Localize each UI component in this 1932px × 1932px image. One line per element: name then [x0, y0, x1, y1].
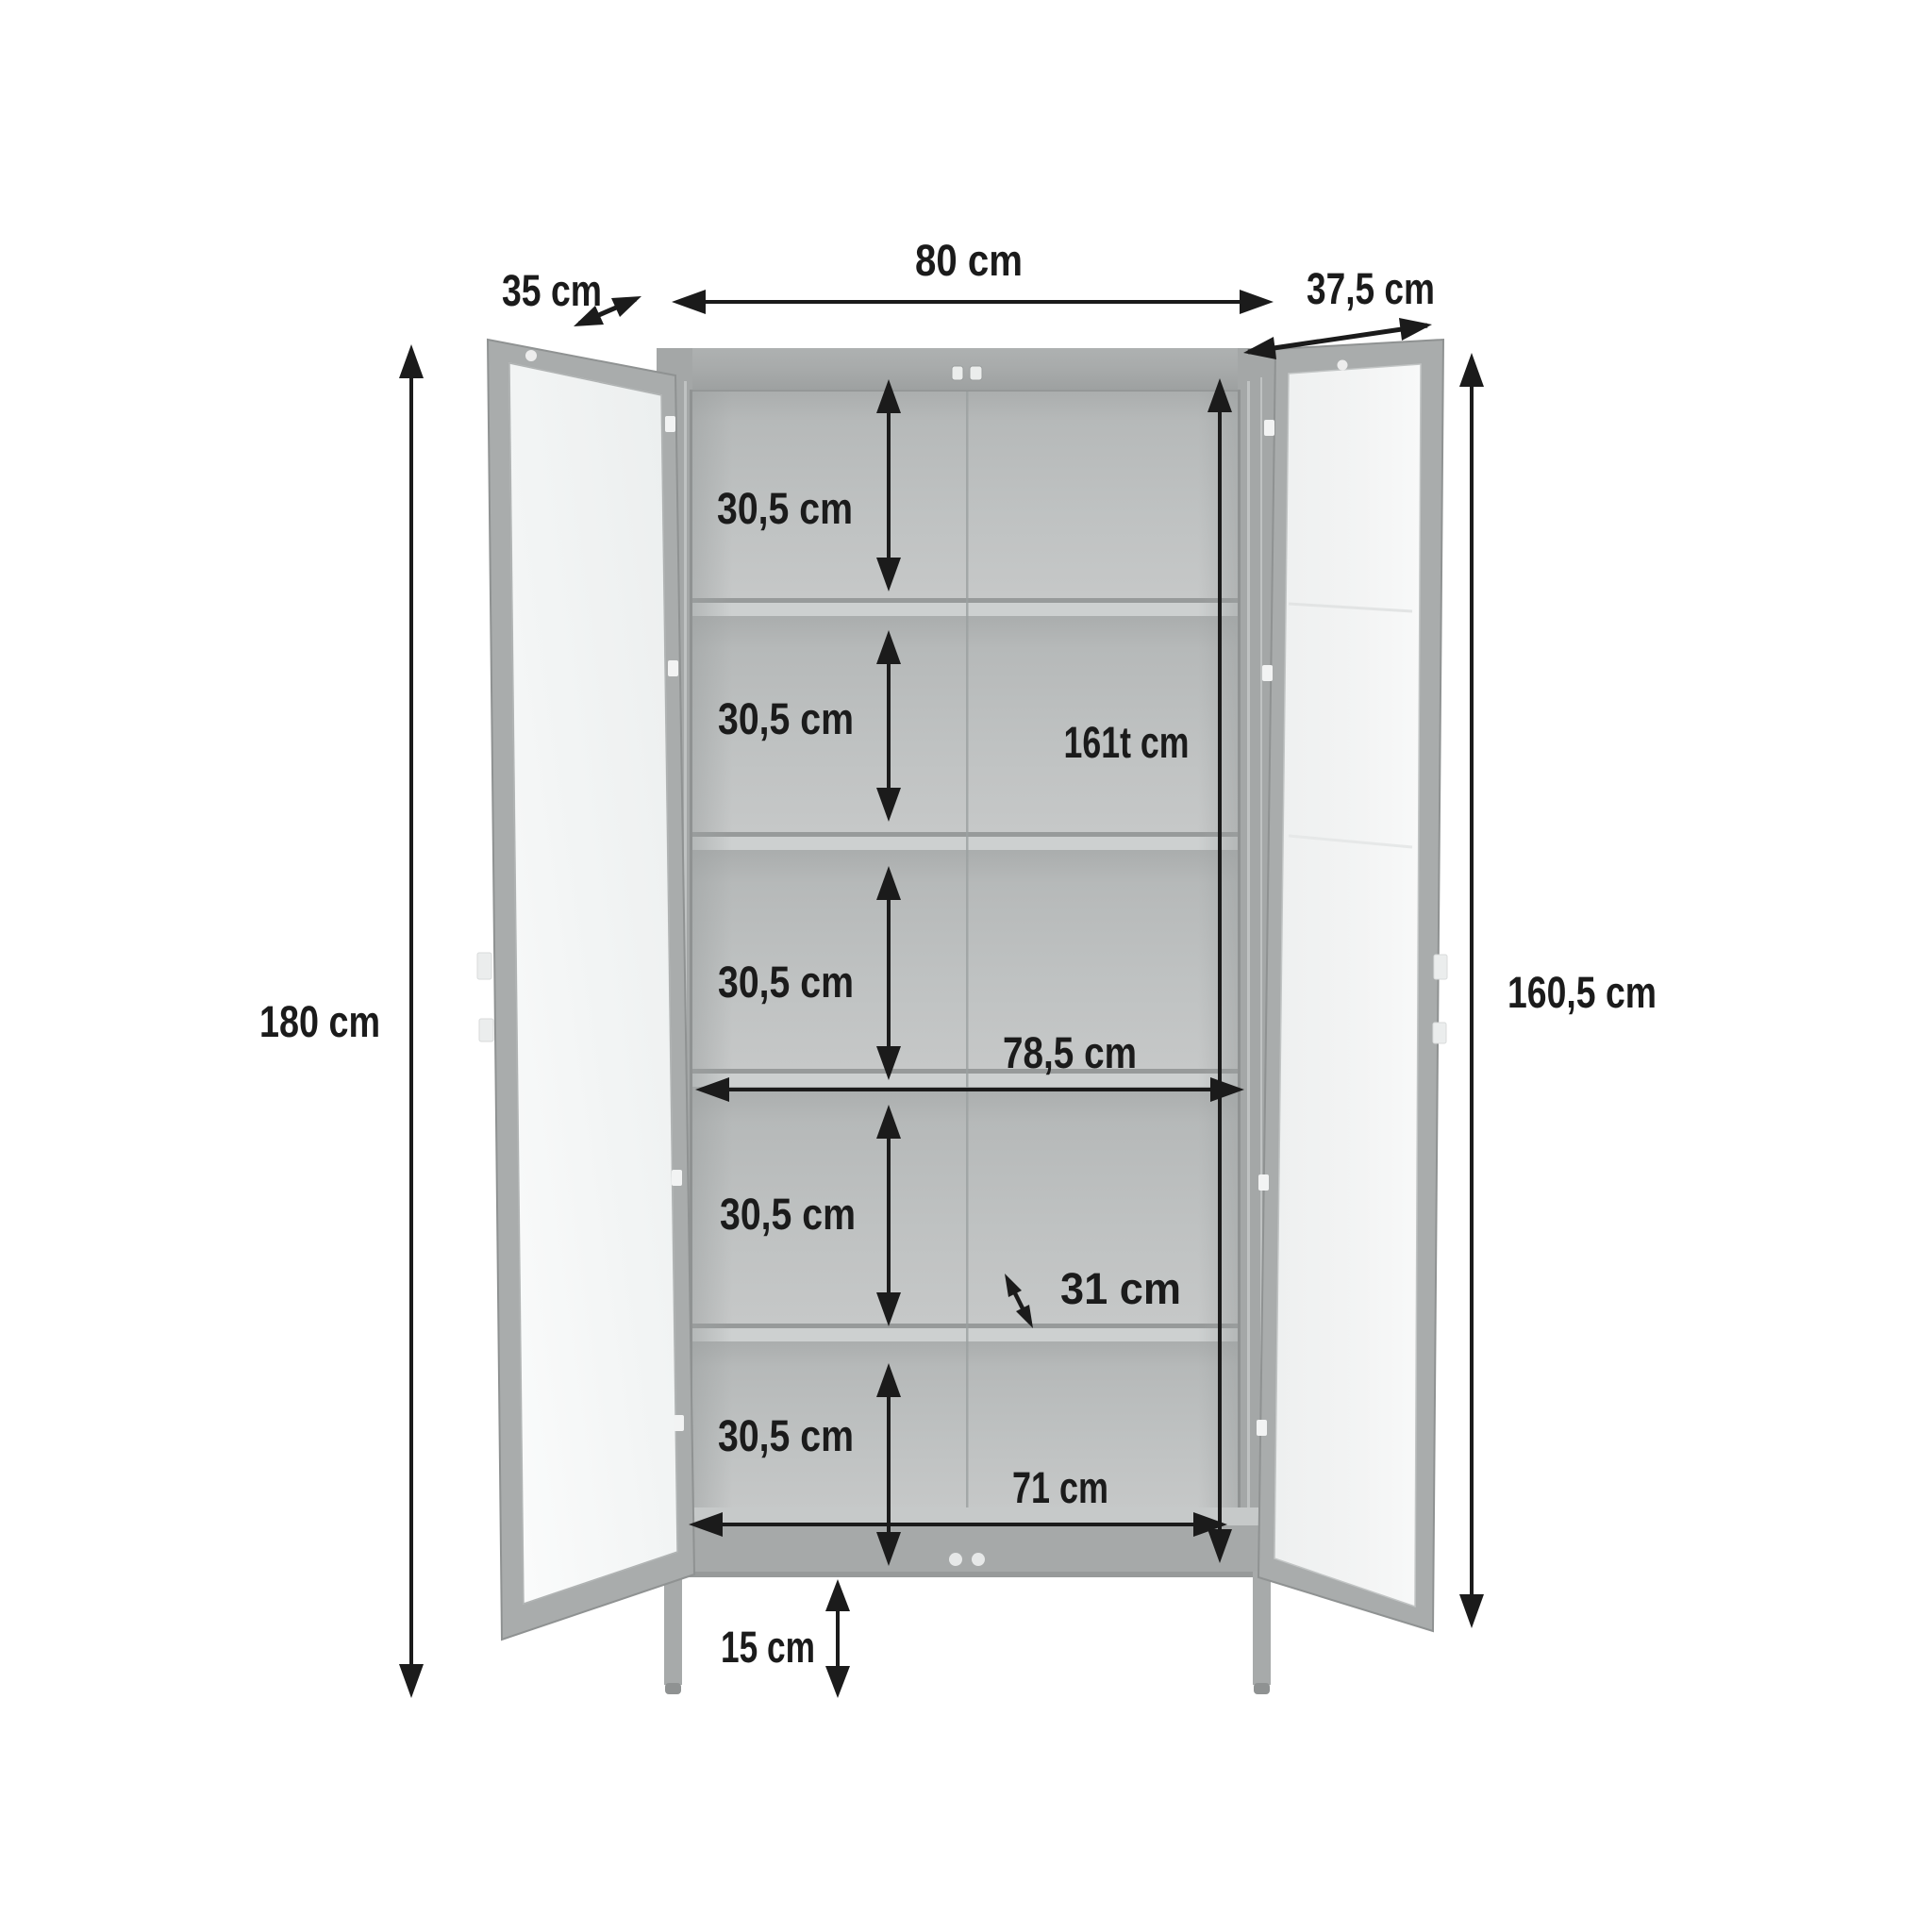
- svg-text:180 cm: 180 cm: [259, 996, 380, 1046]
- svg-text:37,5 cm: 37,5 cm: [1307, 263, 1435, 313]
- svg-text:78,5 cm: 78,5 cm: [1003, 1027, 1137, 1077]
- svg-text:160,5 cm: 160,5 cm: [1507, 967, 1657, 1017]
- svg-text:30,5 cm: 30,5 cm: [720, 1189, 856, 1239]
- svg-text:31 cm: 31 cm: [1060, 1263, 1181, 1313]
- svg-text:80 cm: 80 cm: [915, 235, 1023, 285]
- svg-text:30,5 cm: 30,5 cm: [718, 1410, 854, 1460]
- svg-text:161t cm: 161t cm: [1064, 717, 1190, 767]
- svg-text:15 cm: 15 cm: [721, 1622, 815, 1672]
- svg-text:35 cm: 35 cm: [502, 265, 602, 315]
- svg-text:30,5 cm: 30,5 cm: [718, 693, 854, 743]
- svg-text:71 cm: 71 cm: [1012, 1462, 1108, 1512]
- svg-text:30,5 cm: 30,5 cm: [717, 483, 853, 533]
- svg-text:30,5 cm: 30,5 cm: [718, 957, 854, 1007]
